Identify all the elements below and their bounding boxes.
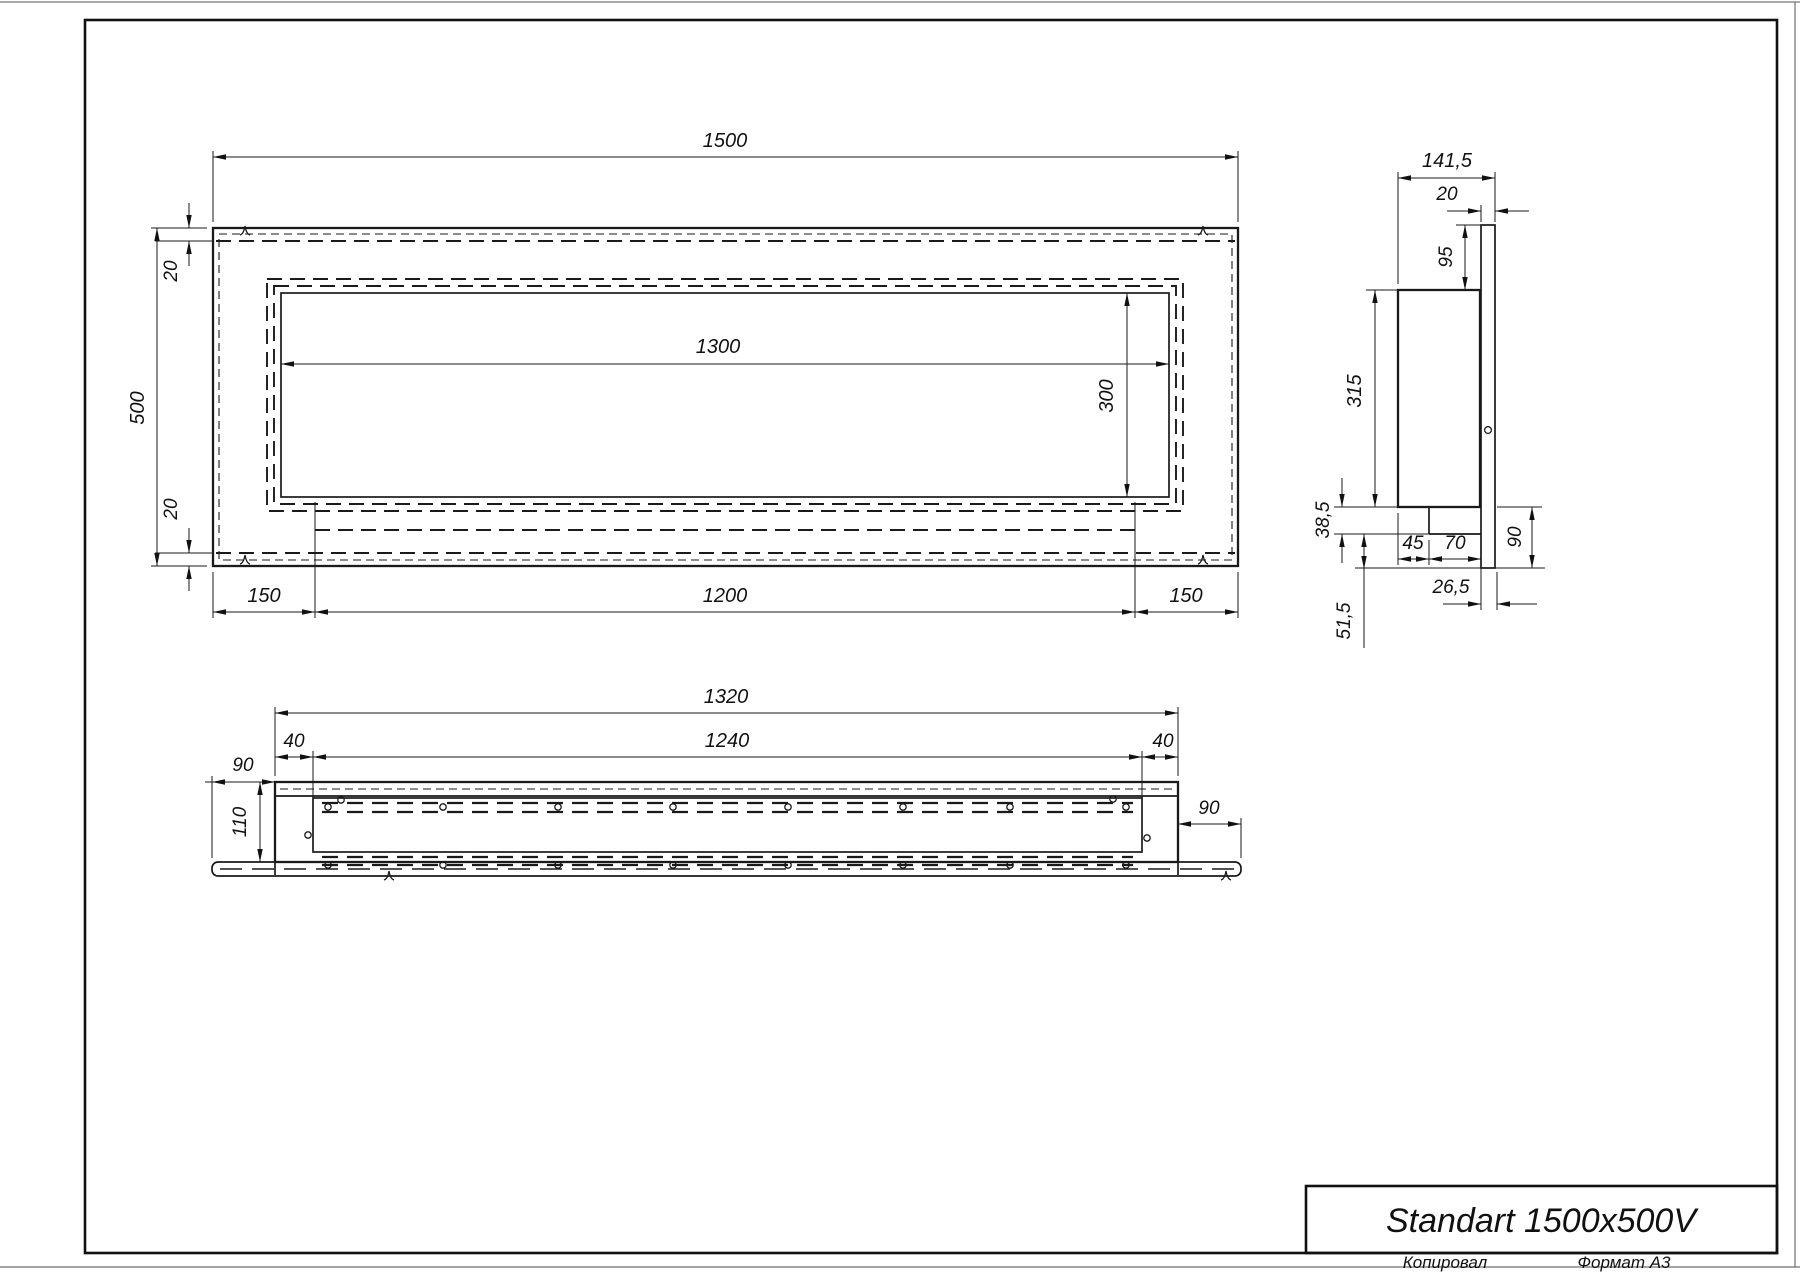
dim-front-left-margin: 150	[247, 585, 280, 607]
dim-bottom-left-end: 40	[283, 731, 305, 752]
copied-label: Копировал	[1403, 1253, 1488, 1272]
format-label: Формат А3	[1577, 1253, 1671, 1272]
bottom-view: 1320 1240 40 40 90 90 110	[205, 686, 1241, 880]
dim-side-tray-offset: 45	[1402, 533, 1424, 554]
drawing-title: Standart 1500x500V	[1386, 1202, 1699, 1240]
dim-side-flange-thickness: 20	[1435, 184, 1458, 205]
dim-side-tray-height: 38,5	[1313, 501, 1334, 538]
dim-side-flange-overhang: 26,5	[1432, 577, 1470, 598]
technical-drawing: 1500 500 20 20 1300 300 150 1200 150	[0, 0, 1800, 1273]
dim-side-tray-width: 70	[1444, 533, 1466, 554]
dim-front-opening-width: 1300	[696, 336, 741, 358]
drawing-frame	[85, 20, 1777, 1253]
dim-front-top-inset: 20	[161, 260, 182, 283]
dim-side-flange-top-offset: 95	[1436, 246, 1457, 268]
dim-side-body-height: 315	[1344, 373, 1366, 407]
dim-front-height: 500	[127, 391, 149, 424]
title-block: Standart 1500x500V Копировал Формат А3	[1306, 1186, 1777, 1272]
dim-bottom-right-overhang: 90	[1198, 798, 1220, 819]
dim-front-opening-height: 300	[1096, 379, 1118, 412]
dim-front-right-margin: 150	[1169, 585, 1202, 607]
dim-side-depth: 141,5	[1422, 150, 1473, 172]
dim-side-bottom-drop: 51,5	[1334, 602, 1355, 639]
dim-front-bottom-inset: 20	[161, 498, 182, 521]
dim-side-flange-drop: 90	[1505, 526, 1526, 548]
front-view: 1500 500 20 20 1300 300 150 1200 150	[127, 130, 1238, 618]
dim-bottom-opening-width: 1240	[705, 730, 750, 752]
dim-bottom-depth: 110	[230, 806, 251, 837]
flange-hole	[1485, 427, 1492, 434]
dim-bottom-outer-width: 1320	[704, 686, 749, 708]
side-view: 141,5 20 95 315 38,5 45 70 90	[1313, 150, 1545, 648]
dim-front-bottom-span: 1200	[703, 585, 748, 607]
dim-bottom-left-overhang: 90	[232, 755, 254, 776]
dim-front-width: 1500	[703, 130, 748, 152]
dim-bottom-right-end: 40	[1152, 731, 1174, 752]
